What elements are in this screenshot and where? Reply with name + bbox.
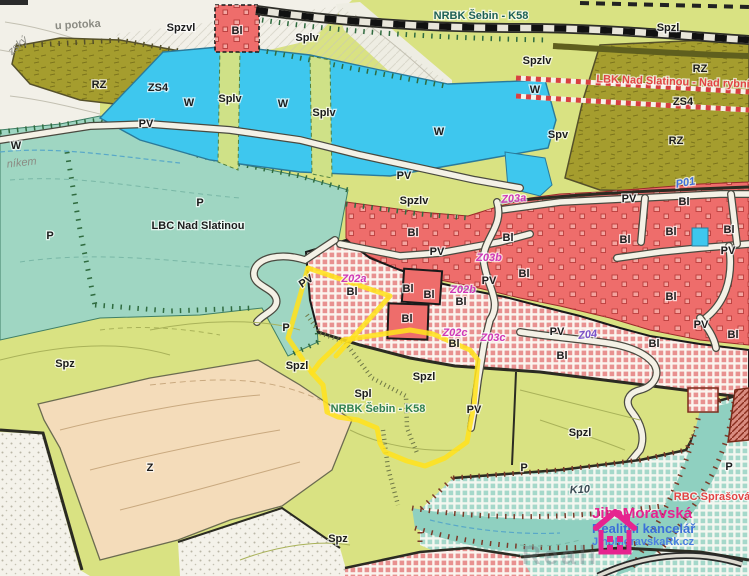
- map-label: LBC Nad Slatinou: [152, 220, 245, 232]
- map-label: Bl: [724, 224, 735, 236]
- map-label: Bl: [620, 234, 631, 246]
- map-label: Splv: [218, 93, 242, 105]
- map-label: RZ: [669, 135, 684, 147]
- map-label: K10: [569, 483, 591, 496]
- map-label: Spzvl: [167, 22, 196, 34]
- zoning-map: u potokazskýSpzvlBlSplvNRBK Šebin - K58S…: [0, 0, 749, 576]
- map-label: ZS4: [673, 96, 694, 108]
- map-label: Spv: [548, 129, 569, 141]
- map-label: Spzlv: [523, 55, 553, 67]
- map-label: PV: [467, 404, 482, 416]
- map-label: P: [196, 197, 203, 209]
- map-label: Bl: [728, 329, 739, 341]
- map-label: W: [434, 126, 445, 138]
- map-label: P: [520, 462, 527, 474]
- map-label: PV: [482, 275, 497, 287]
- map-label: P: [46, 230, 53, 242]
- pond-small: [692, 228, 708, 246]
- map-label: Bl: [519, 268, 530, 280]
- map-label: Bl: [232, 25, 243, 37]
- map-label: W: [184, 97, 195, 109]
- map-label: Spz: [55, 358, 75, 370]
- map-label: Bl: [666, 226, 677, 238]
- map-label: Splv: [312, 107, 336, 119]
- map-label: RZ: [693, 63, 708, 75]
- map-label: Spzlv: [400, 195, 430, 207]
- map-label: Bl: [503, 232, 514, 244]
- map-label: PV: [139, 118, 154, 130]
- map-label: Bl: [679, 196, 690, 208]
- map-label: Spz: [328, 533, 348, 545]
- map-label: RZ: [92, 79, 107, 91]
- map-label: W: [278, 98, 289, 110]
- map-label: W: [530, 84, 541, 96]
- map-label: u potoka: [55, 18, 102, 32]
- map-label: Spzl: [413, 371, 436, 383]
- realty-watermark: JihoMoravská Realitní kancelář JihoMorav…: [592, 506, 695, 549]
- map-label: Bl: [424, 289, 435, 301]
- map-label: Z: [147, 462, 154, 474]
- map-label: P: [282, 322, 289, 334]
- map-label: Spzl: [657, 22, 680, 34]
- map-label: RBC Sprašová: [674, 491, 749, 503]
- map-label: Spl: [354, 388, 371, 400]
- map-label: W: [11, 140, 22, 152]
- map-label: PV: [397, 170, 412, 182]
- map-label: Z02a: [340, 273, 366, 285]
- map-label: Bl: [403, 283, 414, 295]
- map-label: Z03b: [475, 252, 502, 264]
- map-label: PV: [694, 319, 709, 331]
- house-logo-icon: [592, 506, 638, 556]
- map-label: Z04: [577, 328, 598, 342]
- zoning-map-canvas: u potokazskýSpzvlBlSplvNRBK Šebin - K58S…: [0, 0, 749, 576]
- map-label: Bl: [557, 350, 568, 362]
- map-label: Bl: [347, 286, 358, 298]
- map-label: ZS4: [148, 82, 169, 94]
- map-label: P: [725, 461, 732, 473]
- map-label: Z03a: [500, 192, 527, 206]
- map-label: Bl: [666, 291, 677, 303]
- map-label: NRBK Šebin - K58: [331, 402, 426, 415]
- map-label: Bl: [649, 338, 660, 350]
- map-label: Bl: [449, 338, 460, 350]
- watermark-ghost-text: Reali: [522, 540, 599, 571]
- map-label: Bl: [408, 227, 419, 239]
- map-label: Splv: [295, 32, 319, 44]
- map-label: PV: [550, 326, 565, 338]
- map-label: Z03c: [479, 332, 505, 344]
- map-label: Z02b: [449, 284, 476, 296]
- map-label: NRBK Šebin - K58: [434, 9, 529, 22]
- map-label: Spzl: [286, 360, 309, 372]
- map-label: Spzl: [569, 427, 592, 439]
- map-label: Bl: [402, 313, 413, 325]
- map-label: Bl: [456, 296, 467, 308]
- map-label: PV: [430, 246, 445, 258]
- map-label: PV: [721, 245, 736, 257]
- map-label: PV: [622, 193, 637, 205]
